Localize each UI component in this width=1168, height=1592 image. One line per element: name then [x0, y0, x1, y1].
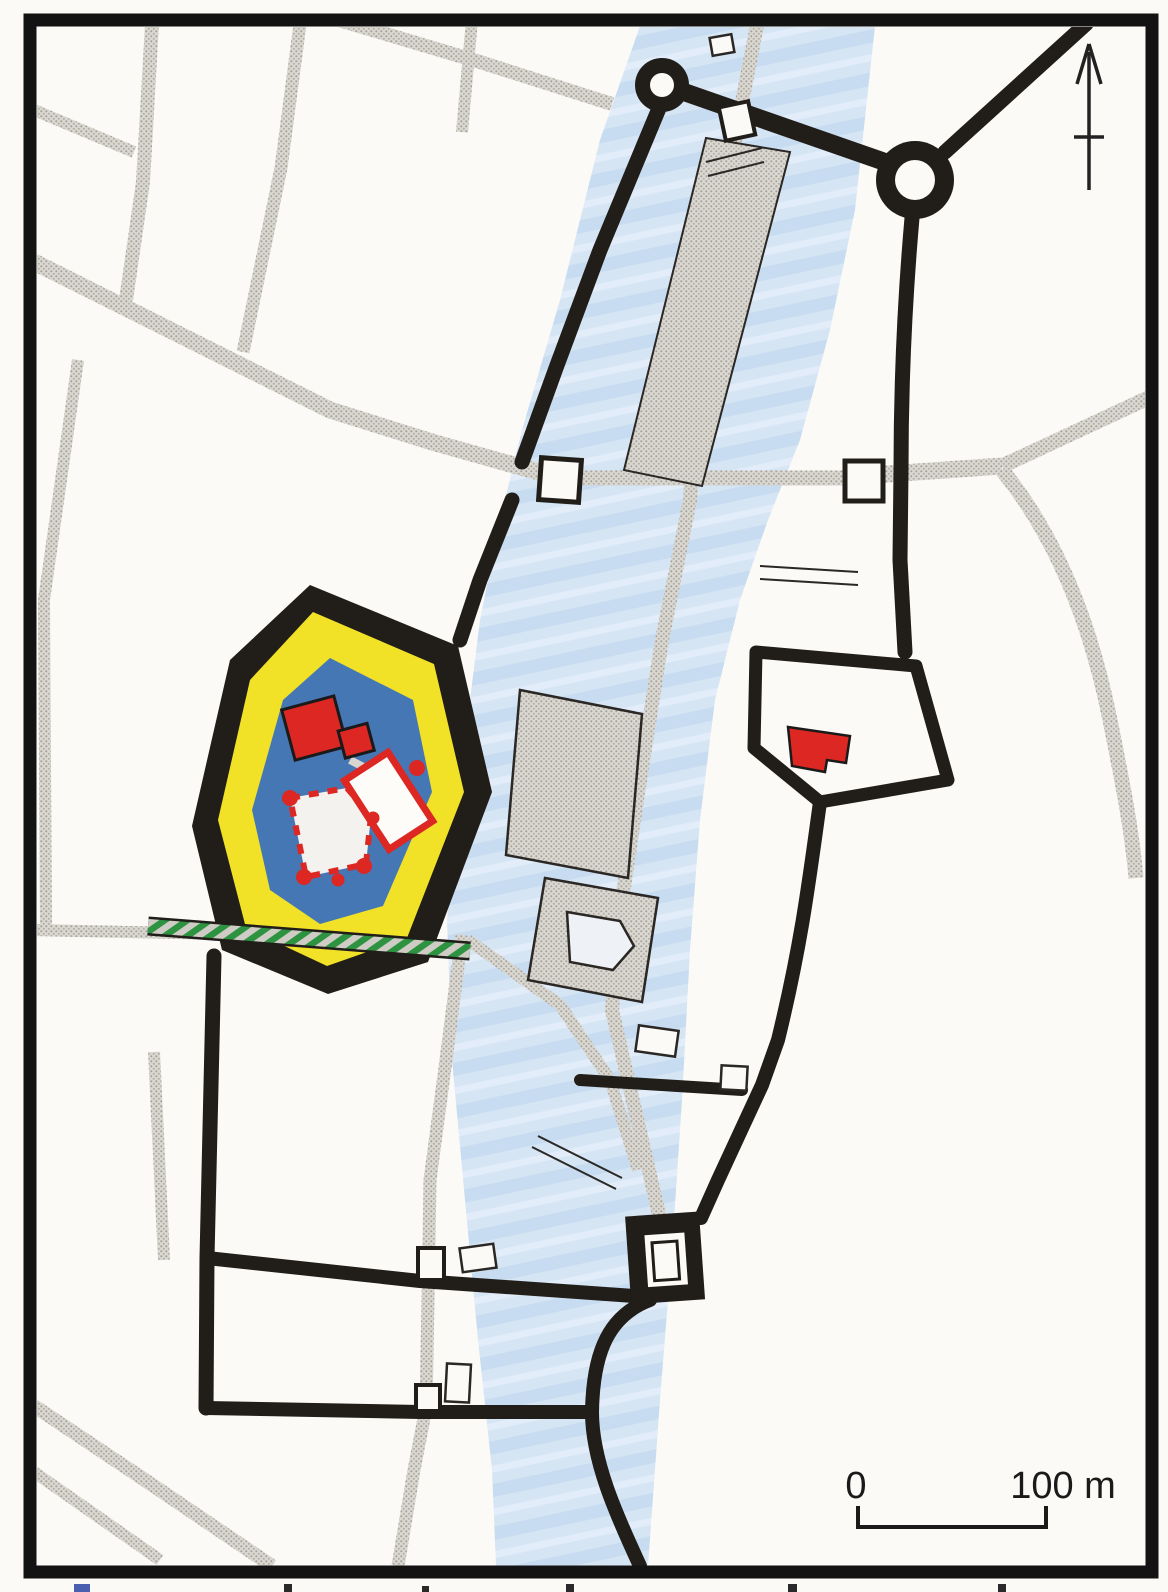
west-bridge-gate [539, 458, 582, 503]
eastern-enclosure [754, 652, 948, 802]
round-corner-tower [635, 58, 689, 112]
east-bridge-gate [845, 461, 883, 501]
south-gate-tower [625, 1211, 705, 1304]
scale-bar-zero-label: 0 [845, 1465, 866, 1507]
north-gate [719, 101, 755, 140]
historic-town-plan-map: 0 100 m [0, 0, 1168, 1592]
scale-bar-100m-label: 100 m [1010, 1465, 1116, 1507]
south-west-gate-1 [418, 1248, 444, 1280]
riverside-block [506, 690, 642, 878]
map-canvas: 0 100 m [0, 0, 1168, 1592]
large-corner-tower [876, 141, 954, 219]
south-west-gate-2 [416, 1385, 440, 1411]
